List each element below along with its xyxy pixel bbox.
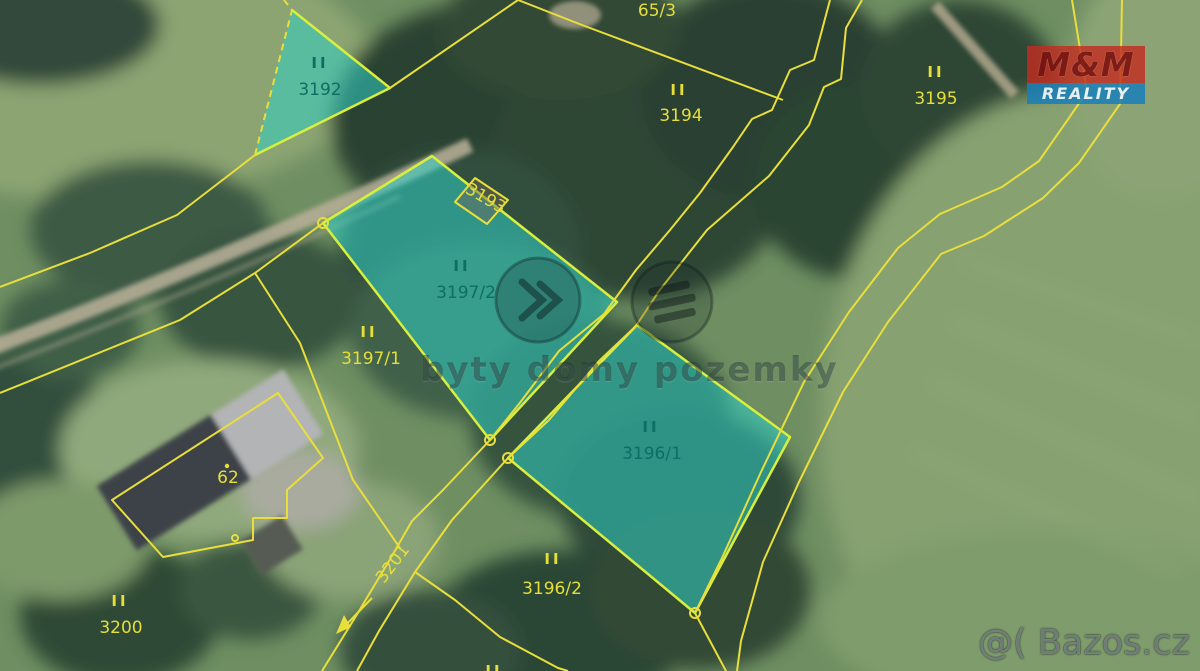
parcel-marker-3197-2: II	[453, 257, 470, 275]
agency-logo-mm: M&M	[1027, 46, 1145, 83]
boundary-line	[390, 0, 518, 88]
parcel-marker-3194: II	[670, 81, 687, 99]
parcel-marker-3196-1: II	[642, 418, 659, 436]
parcel-label-3200: 3200	[99, 618, 142, 638]
parcel-marker-3195: II	[927, 63, 944, 81]
road-direction-arrow-icon	[336, 615, 351, 634]
parcel-label-3195: 3195	[914, 89, 957, 109]
parcel-label-3196-2: 3196/2	[522, 579, 582, 599]
parcel-label-3196-1: 3196/1	[622, 444, 682, 464]
parcel-label-65-3: 65/3	[638, 1, 676, 21]
aerial-cadastral-map: 65/3 II 3192 3193 II 3194 II 3195 II 319…	[0, 0, 1200, 671]
boundary-line	[0, 273, 255, 393]
parcel-label-3194: 3194	[659, 106, 702, 126]
parcel-label-3197-2: 3197/2	[436, 283, 496, 303]
center-watermark-text: byty domy pozemky	[420, 350, 839, 390]
parcel-label-3192: 3192	[298, 80, 341, 100]
agency-logo-reality: REALITY	[1027, 83, 1145, 104]
parcel-marker-bottom-edge: II	[485, 662, 502, 671]
parcel-marker-3196-2: II	[544, 550, 561, 568]
parcel-label-3197-1: 3197/1	[341, 349, 401, 369]
boundary-line	[255, 273, 400, 548]
parcel-marker-3192: II	[311, 54, 328, 72]
parcel-marker-3197-1: II	[360, 323, 377, 341]
parcel-label-62: 62	[217, 468, 239, 488]
boundary-point	[232, 535, 238, 541]
cadastral-overlay: 65/3 II 3192 3193 II 3194 II 3195 II 319…	[0, 0, 1200, 671]
boundary-line	[255, 223, 323, 273]
parcel-label-3201: 3201	[372, 541, 414, 588]
parcel-marker-3200: II	[111, 592, 128, 610]
site-credit-watermark: @( Bazos.cz	[978, 623, 1190, 663]
agency-logo: M&M REALITY	[1027, 46, 1145, 104]
boundary-line	[0, 155, 255, 287]
